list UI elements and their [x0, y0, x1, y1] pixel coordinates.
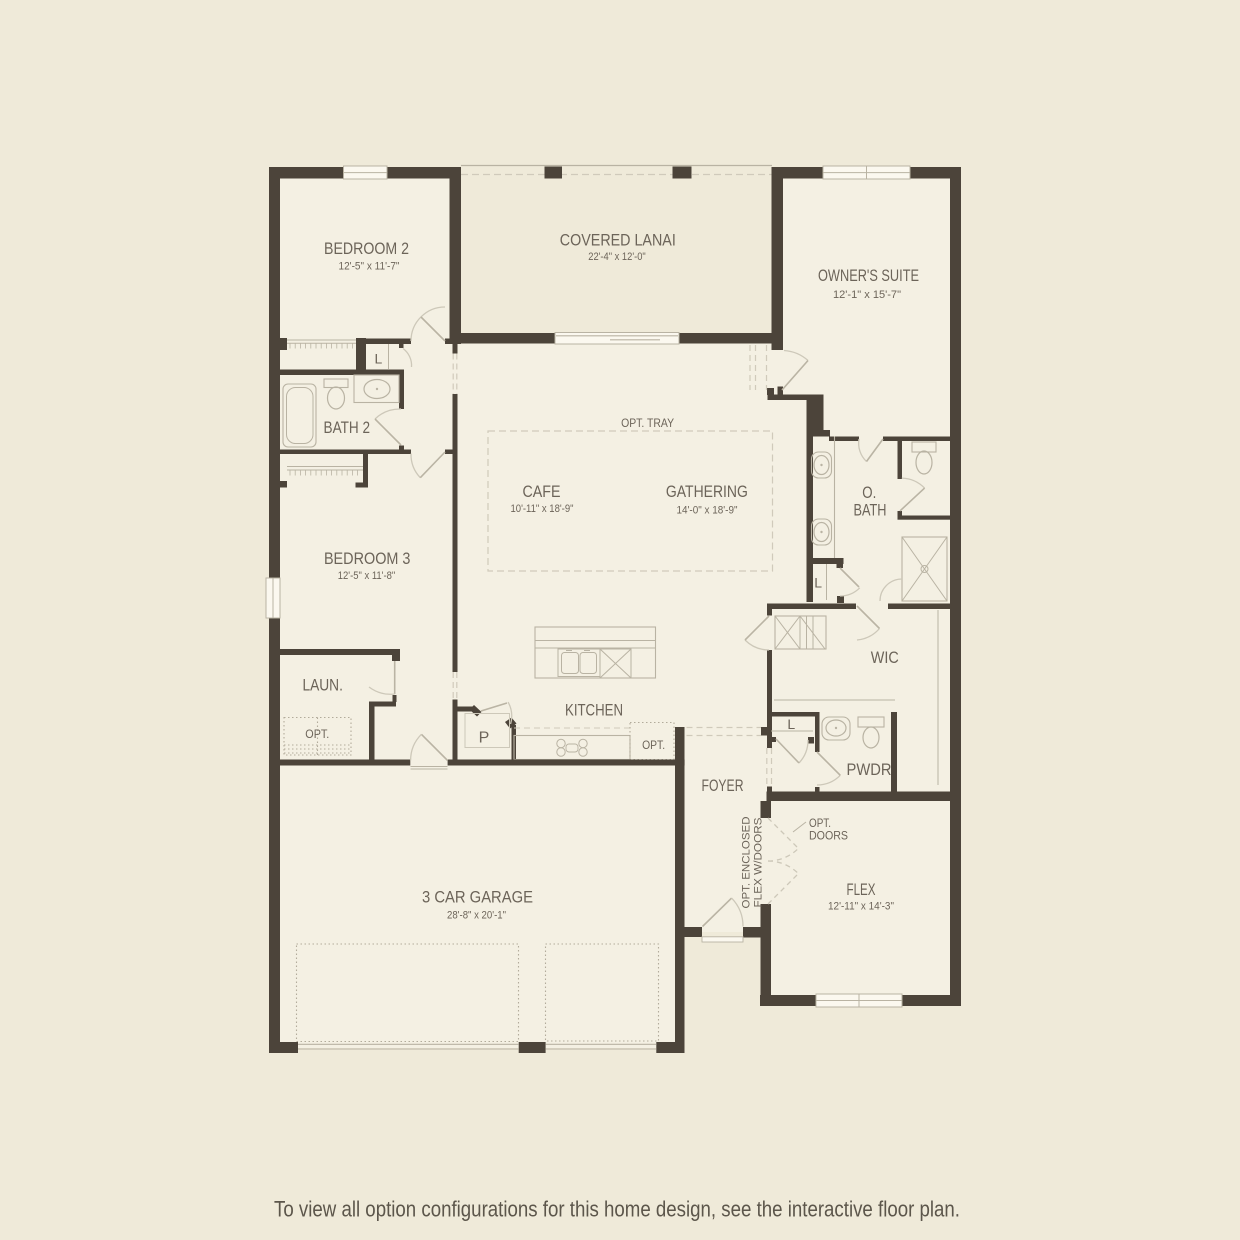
svg-text:OPT.: OPT.	[642, 740, 665, 752]
svg-text:OPT.: OPT.	[305, 729, 329, 741]
svg-text:CAFE: CAFE	[523, 483, 561, 501]
svg-text:OWNER'S SUITE: OWNER'S SUITE	[818, 267, 919, 285]
svg-text:COVERED LANAI: COVERED LANAI	[560, 232, 676, 250]
svg-text:BEDROOM 2: BEDROOM 2	[324, 240, 409, 258]
svg-text:L: L	[787, 716, 795, 732]
svg-text:To view all option configurati: To view all option configurations for th…	[274, 1197, 960, 1222]
svg-text:28'-8" x 20'-1": 28'-8" x 20'-1"	[447, 910, 506, 922]
svg-text:OPT. TRAY: OPT. TRAY	[621, 418, 674, 430]
svg-text:BATH: BATH	[854, 502, 887, 520]
svg-text:12'-5" x 11'-7": 12'-5" x 11'-7"	[339, 260, 400, 272]
svg-text:FLEX: FLEX	[847, 881, 876, 899]
svg-text:O.: O.	[862, 484, 876, 502]
svg-text:OPT. ENCLOSED: OPT. ENCLOSED	[741, 816, 753, 908]
svg-text:PWDR: PWDR	[847, 761, 892, 779]
svg-text:12'-1" x 15'-7": 12'-1" x 15'-7"	[833, 289, 901, 301]
svg-text:12'-5" x 11'-8": 12'-5" x 11'-8"	[338, 570, 396, 582]
svg-text:14'-0" x 18'-9": 14'-0" x 18'-9"	[677, 505, 738, 517]
svg-text:GATHERING: GATHERING	[666, 483, 748, 501]
svg-text:KITCHEN: KITCHEN	[565, 702, 623, 720]
svg-text:22'-4" x 12'-0": 22'-4" x 12'-0"	[588, 251, 646, 263]
svg-text:L: L	[814, 575, 822, 591]
svg-text:12'-11" x 14'-3": 12'-11" x 14'-3"	[828, 900, 894, 912]
svg-text:DOORS: DOORS	[809, 831, 848, 843]
svg-text:L: L	[375, 350, 383, 366]
svg-text:LAUN.: LAUN.	[302, 677, 343, 695]
svg-text:10'-11" x 18'-9": 10'-11" x 18'-9"	[511, 503, 574, 515]
svg-text:OPT.: OPT.	[809, 818, 831, 830]
svg-text:P: P	[479, 729, 490, 746]
svg-text:BEDROOM 3: BEDROOM 3	[324, 550, 411, 568]
svg-text:WIC: WIC	[871, 649, 899, 667]
svg-text:FOYER: FOYER	[702, 777, 744, 795]
svg-text:3 CAR GARAGE: 3 CAR GARAGE	[422, 889, 533, 907]
svg-text:BATH 2: BATH 2	[324, 419, 371, 437]
svg-text:FLEX W/DOORS: FLEX W/DOORS	[753, 818, 765, 908]
